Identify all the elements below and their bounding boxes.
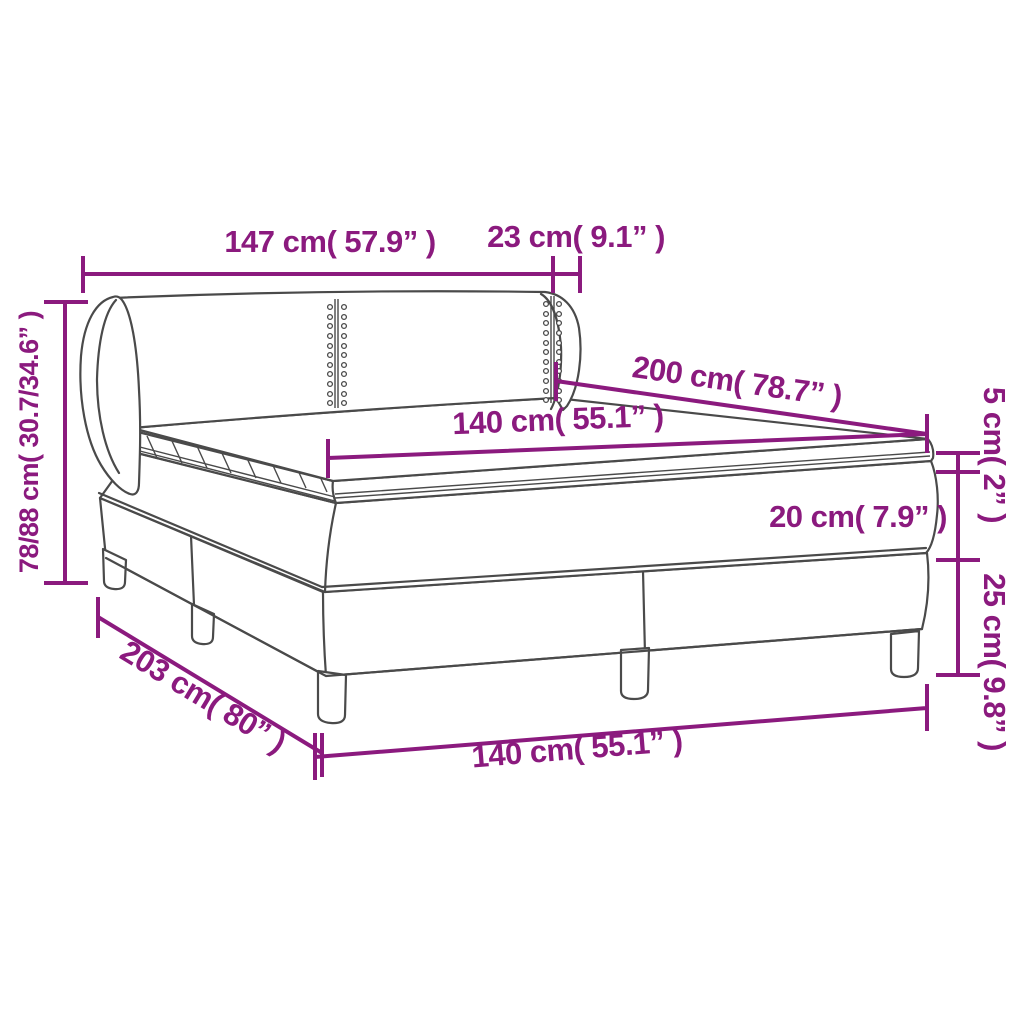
mattress-thickness-label: 20 cm( 7.9” ) xyxy=(769,499,947,534)
topper-thickness-label: 5 cm( 2” ) xyxy=(977,387,1012,523)
bed-leg xyxy=(891,631,919,677)
dim-line-height-stack xyxy=(936,453,980,675)
bed-dimension-diagram: 147 cm( 57.9” ) 23 cm( 9.1” ) 200 cm( 78… xyxy=(0,0,1024,1024)
bed-leg xyxy=(621,648,649,699)
base-width-label: 140 cm( 55.1” ) xyxy=(470,723,683,775)
dim-line-headboard-width xyxy=(83,256,580,293)
headboard-depth-label: 23 cm( 9.1” ) xyxy=(487,219,665,254)
base-height-label: 25 cm( 9.8” ) xyxy=(977,573,1012,751)
headboard-left-wing xyxy=(80,296,140,494)
diagram-canvas: 147 cm( 57.9” ) 23 cm( 9.1” ) 200 cm( 78… xyxy=(0,0,1024,1024)
total-length-label: 203 cm( 80” ) xyxy=(114,633,292,760)
headboard-height-label: 78/88 cm( 30.7/34.6” ) xyxy=(14,311,44,573)
bed-leg xyxy=(318,671,346,723)
headboard-width-label: 147 cm( 57.9” ) xyxy=(224,224,435,259)
